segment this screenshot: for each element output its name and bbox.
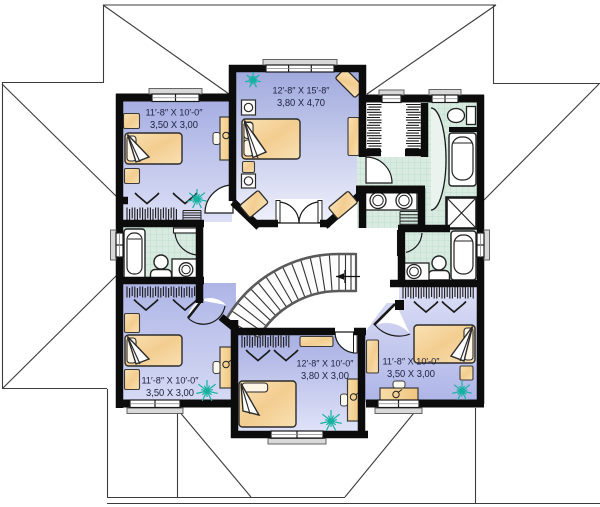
svg-text:12′-8″ X 10′-0″: 12′-8″ X 10′-0″ (297, 359, 355, 370)
svg-text:3,80 X 4,70: 3,80 X 4,70 (277, 98, 325, 109)
svg-text:3,50 X 3,00: 3,50 X 3,00 (150, 120, 198, 131)
svg-text:3,50 X 3,00: 3,50 X 3,00 (387, 369, 435, 380)
svg-text:3,80 X 3,00: 3,80 X 3,00 (301, 371, 349, 382)
svg-text:3,50 X 3,00: 3,50 X 3,00 (146, 388, 194, 399)
svg-text:11′-8″ X 10′-0″: 11′-8″ X 10′-0″ (142, 376, 200, 387)
svg-text:11′-8″ X 10′-0″: 11′-8″ X 10′-0″ (146, 108, 204, 119)
svg-text:11′-8″ X 10′-0″: 11′-8″ X 10′-0″ (383, 357, 441, 368)
svg-text:12′-8″ X 15′-8″: 12′-8″ X 15′-8″ (273, 86, 331, 97)
